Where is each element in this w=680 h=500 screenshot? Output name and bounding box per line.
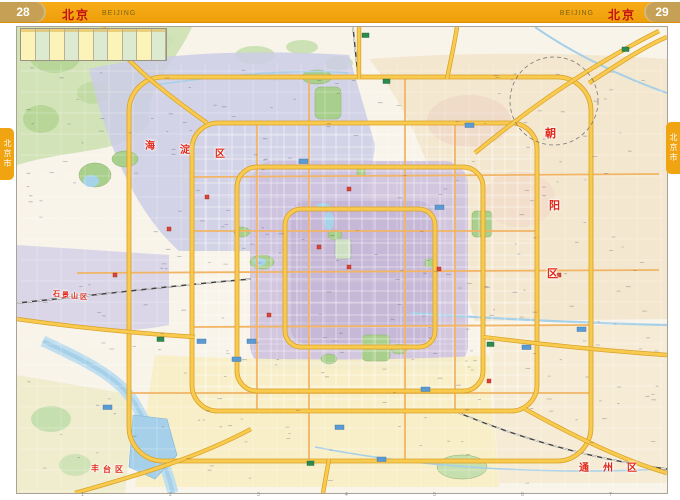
beijing-city-map — [17, 27, 667, 493]
legend-column — [79, 29, 94, 60]
legend-column — [137, 29, 152, 60]
legend-column — [108, 29, 123, 60]
poi-marker — [377, 457, 386, 462]
poi-marker — [197, 339, 206, 344]
side-tab-right: 北京市 — [666, 122, 680, 174]
poi-marker — [557, 273, 561, 277]
legend-column — [50, 29, 65, 60]
poi-marker — [622, 47, 629, 52]
legend-table — [20, 28, 167, 61]
poi-marker — [113, 273, 117, 277]
poi-marker — [167, 227, 171, 231]
atlas-page: { "header": { "left_page_number": "28", … — [0, 0, 680, 500]
poi-marker — [247, 339, 256, 344]
poi-marker — [307, 461, 314, 466]
page-title-cn-left: 北京 — [62, 6, 90, 23]
poi-marker — [299, 159, 308, 164]
legend-column — [123, 29, 138, 60]
poi-marker — [335, 425, 344, 430]
legend-column — [94, 29, 109, 60]
poi-marker — [577, 327, 586, 332]
page-number-right: 29 — [644, 2, 680, 22]
legend-column — [152, 29, 167, 60]
poi-marker — [437, 267, 441, 271]
grid-number: 7 — [609, 492, 612, 498]
header-bar: 28 北京 BEIJING BEIJING 北京 29 — [0, 2, 680, 23]
poi-marker — [205, 195, 209, 199]
legend-column — [65, 29, 80, 60]
poi-marker — [232, 357, 241, 362]
grid-number: 2 — [169, 492, 172, 498]
grid-number: 1 — [81, 492, 84, 498]
grid-number: 5 — [433, 492, 436, 498]
grid-number: 4 — [345, 492, 348, 498]
poi-marker — [157, 337, 164, 342]
page-title-cn-right: 北京 — [608, 6, 636, 23]
poi-marker — [383, 79, 390, 84]
page-title-en-left: BEIJING — [102, 10, 136, 17]
grid-number: 3 — [257, 492, 260, 498]
page-number-left: 28 — [0, 2, 46, 22]
poi-marker — [267, 313, 271, 317]
poi-marker — [103, 405, 112, 410]
legend-column — [21, 29, 36, 60]
poi-marker — [347, 187, 351, 191]
poi-marker — [347, 265, 351, 269]
poi-marker — [421, 387, 430, 392]
poi-marker — [487, 379, 491, 383]
map-grid-numbers: 1234567 — [16, 492, 666, 500]
grid-number: 6 — [521, 492, 524, 498]
page-title-en-right: BEIJING — [560, 10, 594, 17]
poi-marker — [487, 342, 494, 347]
poi-marker — [435, 205, 444, 210]
side-tab-left: 北京市 — [0, 128, 14, 180]
poi-marker — [362, 33, 369, 38]
poi-marker — [317, 245, 321, 249]
legend-column — [36, 29, 51, 60]
map-frame: 海淀区石景山区朝阳区丰台区通州区 — [16, 26, 668, 494]
poi-marker — [522, 345, 531, 350]
poi-marker — [465, 123, 474, 128]
